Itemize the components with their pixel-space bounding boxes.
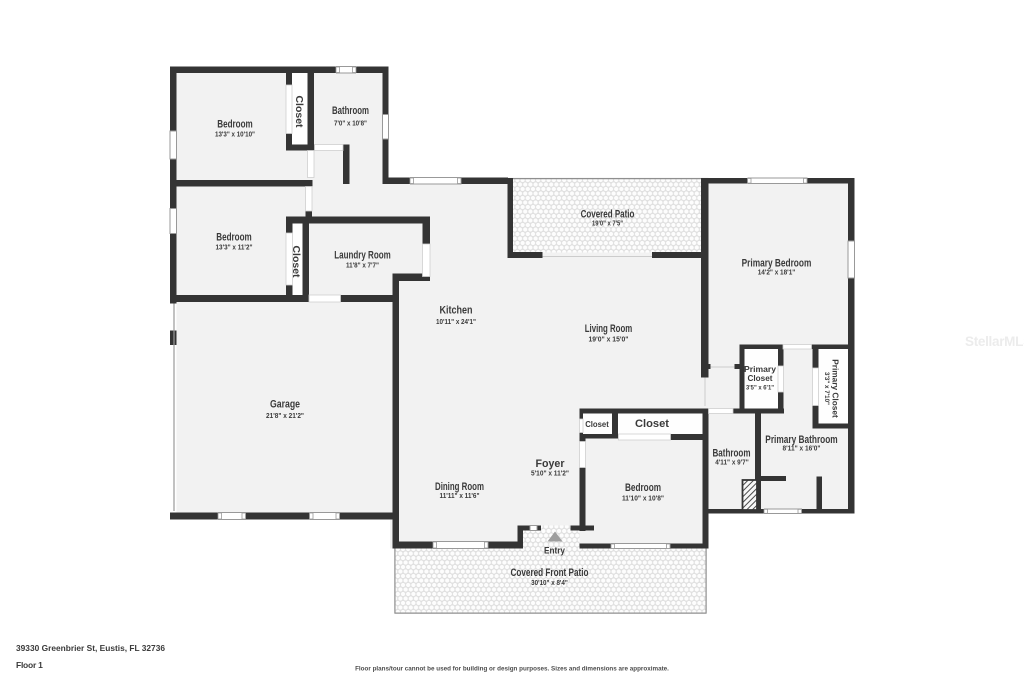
svg-text:8'11" x 16'0": 8'11" x 16'0" bbox=[783, 444, 821, 453]
svg-text:30'10" x 8'4": 30'10" x 8'4" bbox=[531, 578, 568, 587]
svg-text:Bedroom: Bedroom bbox=[625, 482, 661, 494]
svg-text:Closet: Closet bbox=[293, 96, 304, 129]
svg-text:Bathroom: Bathroom bbox=[332, 105, 369, 117]
svg-text:Closet: Closet bbox=[290, 246, 301, 279]
svg-text:Closet: Closet bbox=[585, 420, 609, 429]
svg-text:7'0" x 10'8": 7'0" x 10'8" bbox=[334, 119, 367, 128]
svg-text:Kitchen: Kitchen bbox=[440, 305, 473, 317]
svg-text:Primary Closet: Primary Closet bbox=[831, 359, 841, 418]
svg-text:StellarMLS: StellarMLS bbox=[965, 334, 1024, 349]
svg-text:3'5" x 6'1": 3'5" x 6'1" bbox=[746, 385, 774, 392]
svg-text:11'10" x 10'8": 11'10" x 10'8" bbox=[622, 494, 664, 503]
svg-text:Closet: Closet bbox=[748, 373, 773, 383]
svg-text:11'8" x 7'7": 11'8" x 7'7" bbox=[346, 261, 379, 270]
svg-text:Floor plans/tour cannot be use: Floor plans/tour cannot be used for buil… bbox=[355, 666, 669, 673]
svg-text:13'3" x 11'2": 13'3" x 11'2" bbox=[216, 243, 253, 252]
svg-text:Closet: Closet bbox=[635, 418, 669, 430]
svg-text:4'11" x 9'7": 4'11" x 9'7" bbox=[715, 458, 749, 467]
svg-text:Entry: Entry bbox=[544, 546, 566, 556]
svg-text:3'3" x 7'10": 3'3" x 7'10" bbox=[823, 372, 830, 405]
svg-text:13'3" x 10'10": 13'3" x 10'10" bbox=[215, 130, 255, 139]
svg-text:Floor 1: Floor 1 bbox=[16, 660, 43, 670]
svg-text:Garage: Garage bbox=[270, 399, 300, 411]
svg-text:Living Room: Living Room bbox=[585, 323, 633, 335]
svg-text:14'2" x 18'1": 14'2" x 18'1" bbox=[758, 268, 796, 277]
svg-text:21'8" x 21'2": 21'8" x 21'2" bbox=[266, 411, 304, 420]
svg-text:19'0" x 15'0": 19'0" x 15'0" bbox=[589, 335, 629, 344]
svg-text:19'0" x 7'5": 19'0" x 7'5" bbox=[592, 219, 623, 228]
svg-text:5'10" x 11'2": 5'10" x 11'2" bbox=[531, 469, 569, 478]
svg-text:10'11" x 24'1": 10'11" x 24'1" bbox=[436, 317, 476, 326]
svg-text:39330 Greenbrier St, Eustis, F: 39330 Greenbrier St, Eustis, FL 32736 bbox=[16, 643, 165, 653]
svg-text:11'11" x 11'6": 11'11" x 11'6" bbox=[440, 491, 480, 500]
